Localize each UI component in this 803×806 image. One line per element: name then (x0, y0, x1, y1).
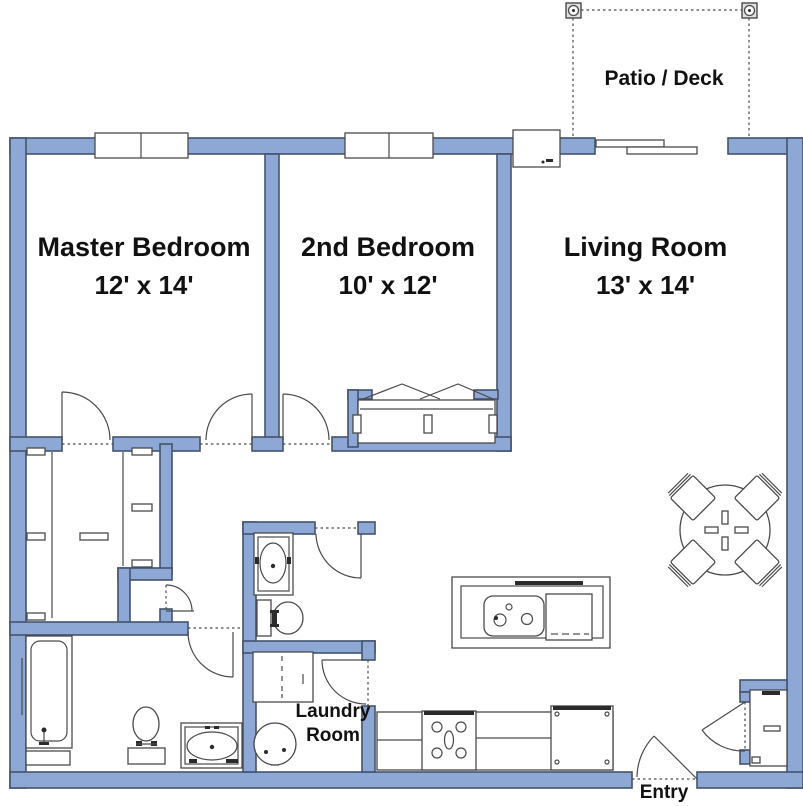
fireplace-box (513, 130, 560, 167)
master-closet-door (62, 392, 113, 444)
closet-shelf (27, 448, 45, 455)
master-bathroom-door (188, 628, 243, 677)
room-name: Living Room (538, 231, 753, 263)
master-bedroom-door (200, 394, 252, 444)
second-bedroom-door (283, 394, 332, 444)
patio-post (566, 3, 581, 18)
label-second-bedroom: 2nd Bedroom 10' x 12' (288, 231, 488, 302)
room-name: Entry (640, 782, 689, 803)
master-bathroom-fixtures (22, 636, 242, 768)
dishwasher (546, 594, 592, 640)
room-dimensions: 13' x 14' (538, 270, 753, 301)
second-bedroom-window (345, 133, 433, 158)
range-stove (422, 711, 476, 770)
refrigerator (551, 706, 613, 770)
coat-closet (750, 690, 787, 766)
hall-bathroom-door (315, 528, 361, 578)
vanity-sink (181, 723, 242, 768)
closet-shelf (27, 613, 45, 620)
entry-door (632, 736, 697, 779)
hall-bathroom-fixtures (254, 533, 303, 636)
double-sink (484, 596, 544, 636)
washer-dryer (253, 652, 313, 702)
dining-set (667, 472, 783, 588)
master-bedroom-window (95, 133, 188, 158)
sliding-glass-door (596, 140, 697, 154)
vanity-sink (254, 533, 293, 595)
closet-hall-door (166, 585, 194, 611)
patio-post (742, 3, 757, 18)
coat-closet-door (702, 702, 745, 751)
toilet (128, 707, 165, 764)
room-name: Laundry Room (296, 701, 371, 746)
kitchen-fixtures (377, 577, 613, 770)
room-dimensions: 10' x 12' (288, 270, 488, 301)
bathtub (26, 636, 72, 765)
kitchen-island (452, 577, 610, 648)
closet-shelf (27, 533, 45, 540)
closet-shelf (132, 560, 152, 567)
label-master-bedroom: Master Bedroom 12' x 14' (18, 231, 270, 302)
room-dimensions: 12' x 14' (18, 270, 270, 301)
room-name: 2nd Bedroom (288, 231, 488, 263)
room-name: Master Bedroom (18, 231, 270, 263)
closet-shelf (132, 448, 152, 455)
closet-shelf (80, 533, 108, 540)
label-laundry-room: Laundry Room (287, 700, 379, 748)
label-entry: Entry (632, 781, 696, 805)
label-living-room: Living Room 13' x 14' (538, 231, 753, 302)
walk-in-closet-fixtures (27, 448, 152, 620)
toilet (257, 600, 303, 636)
label-patio-deck: Patio / Deck (578, 67, 750, 91)
floor-plan: Master Bedroom 12' x 14' 2nd Bedroom 10'… (0, 0, 803, 806)
closet-shelf (132, 504, 152, 511)
room-name: Patio / Deck (604, 67, 723, 90)
floor-plan-canvas (0, 0, 803, 806)
